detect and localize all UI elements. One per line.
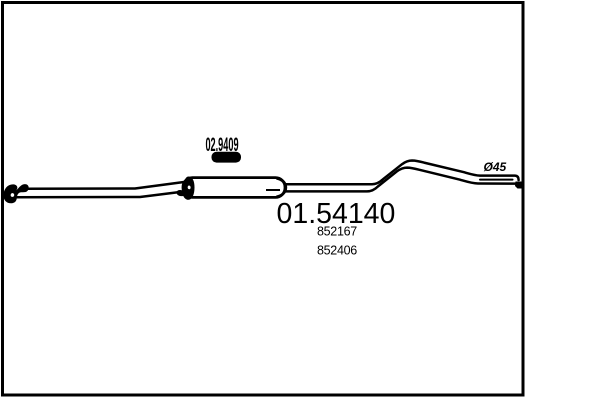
- svg-text:852406: 852406: [317, 243, 357, 257]
- svg-text:Ø45: Ø45: [484, 160, 507, 174]
- svg-text:852167: 852167: [317, 224, 357, 238]
